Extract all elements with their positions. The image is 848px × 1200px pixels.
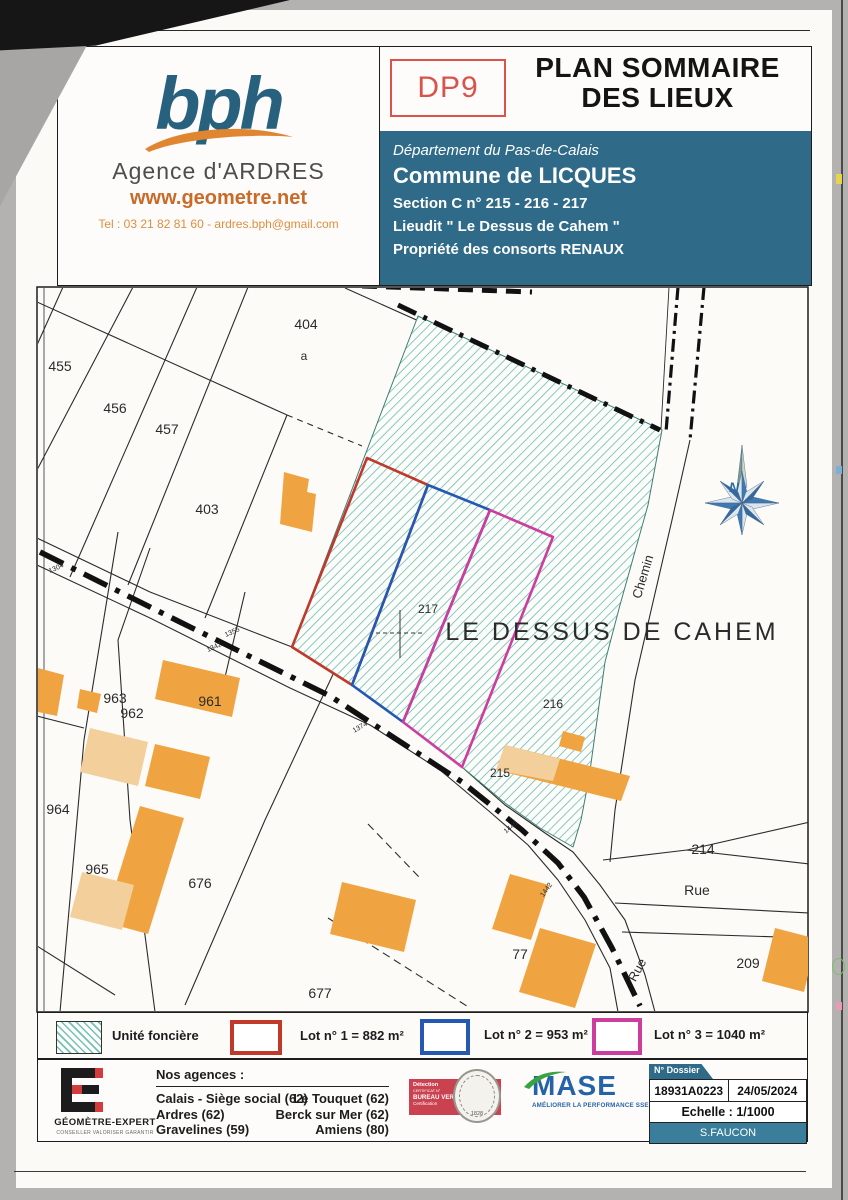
lot-3-label: Lot n° 3 = 1040 m² xyxy=(654,1027,765,1042)
geometre-expert-name: GÉOMÈTRE-EXPERT xyxy=(42,1117,168,1128)
map-label-214: 214 xyxy=(691,841,715,857)
unite-fonciere-label: Unité foncière xyxy=(112,1028,199,1043)
map-label-963: 963 xyxy=(103,690,127,706)
map-label-rue: Rue xyxy=(684,882,710,898)
map-label-455: 455 xyxy=(48,358,72,374)
scan-artifact-speck xyxy=(836,466,842,474)
scanned-survey-plan: bph Agence d'ARDRES www.geometre.net Tel… xyxy=(0,0,848,1200)
map-label-965: 965 xyxy=(85,861,109,877)
map-label-404: 404 xyxy=(294,316,318,332)
map-label-676: 676 xyxy=(188,875,212,891)
dossier-scale: Echelle : 1/1000 xyxy=(650,1101,806,1122)
dossier-author: S.FAUCON xyxy=(650,1122,806,1143)
map-label-77: 77 xyxy=(512,946,528,962)
map-label-a: a xyxy=(301,349,308,363)
map-label-456: 456 xyxy=(103,400,127,416)
map-label-403: 403 xyxy=(195,501,219,517)
map-label-216: 216 xyxy=(543,697,563,711)
map-label-n: N xyxy=(729,479,740,495)
geometre-expert-logo-icon xyxy=(59,1067,105,1118)
agencies-column-right: Le Touquet (62) Berck sur Mer (62) Amien… xyxy=(156,1091,389,1138)
map-label-le-dessus-de-cahem: LE DESSUS DE CAHEM xyxy=(445,618,778,646)
page-bottom-rule xyxy=(14,1171,806,1172)
footer-block: GÉOMÈTRE-EXPERT CONSEILLER VALORISER GAR… xyxy=(37,1059,808,1142)
map-label-457: 457 xyxy=(155,421,179,437)
bv-seal-year: 1828 xyxy=(455,1111,499,1117)
map-label-964: 964 xyxy=(46,801,70,817)
geometre-expert-tagline: CONSEILLER VALORISER GARANTIR xyxy=(42,1130,168,1136)
mase-swoosh-icon xyxy=(524,1067,570,1089)
agency-item: Berck sur Mer (62) xyxy=(156,1107,389,1123)
lot-3-swatch xyxy=(592,1018,642,1055)
agency-item: Le Touquet (62) xyxy=(156,1091,389,1107)
lot-2-swatch xyxy=(420,1019,470,1055)
map-label-215: 215 xyxy=(490,766,510,780)
legend: Unité foncière Lot n° 1 = 882 m² Lot n° … xyxy=(37,1012,808,1059)
dossier-header: N° Dossier xyxy=(649,1064,713,1079)
unite-fonciere-swatch xyxy=(56,1021,102,1054)
map-label-217: 217 xyxy=(418,602,438,616)
map-label-962: 962 xyxy=(120,705,144,721)
dossier-table: 18931A0223 24/05/2024 Echelle : 1/1000 S… xyxy=(649,1079,807,1144)
bureau-veritas-seal-icon: 1828 xyxy=(453,1069,501,1123)
scan-artifact-speck xyxy=(836,174,842,184)
map-label-677: 677 xyxy=(308,985,332,1001)
lot-1-label: Lot n° 1 = 882 m² xyxy=(300,1028,404,1043)
lot-2-label: Lot n° 2 = 953 m² xyxy=(484,1027,588,1042)
agencies-title: Nos agences : xyxy=(156,1067,389,1087)
dossier-box: N° Dossier 18931A0223 24/05/2024 Echelle… xyxy=(649,1064,807,1144)
scan-artifact-speck xyxy=(832,958,845,975)
map-label-209: 209 xyxy=(736,955,760,971)
dossier-number: 18931A0223 xyxy=(650,1080,729,1101)
agency-item: Amiens (80) xyxy=(156,1122,389,1138)
scan-artifact-speck xyxy=(836,1002,842,1010)
lot-1-swatch xyxy=(230,1020,282,1055)
map-label-961: 961 xyxy=(198,693,222,709)
dossier-date: 24/05/2024 xyxy=(729,1080,807,1101)
